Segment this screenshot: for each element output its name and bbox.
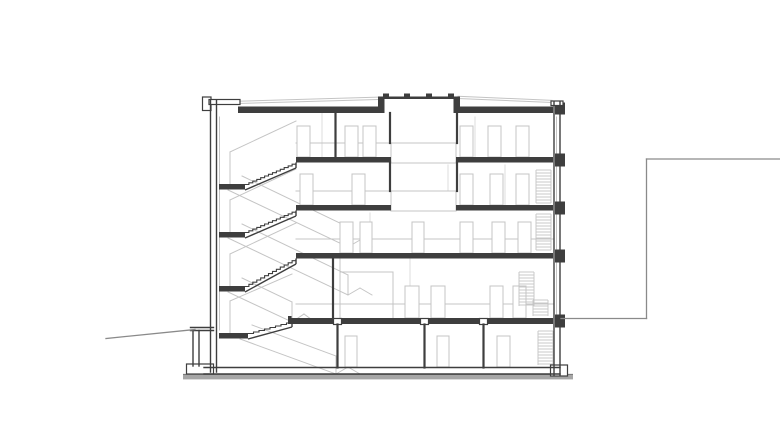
architectural-section-drawing bbox=[0, 0, 780, 448]
building-section-svg bbox=[0, 0, 780, 448]
central-void-boxes bbox=[391, 143, 456, 211]
ground-strip bbox=[183, 374, 573, 379]
